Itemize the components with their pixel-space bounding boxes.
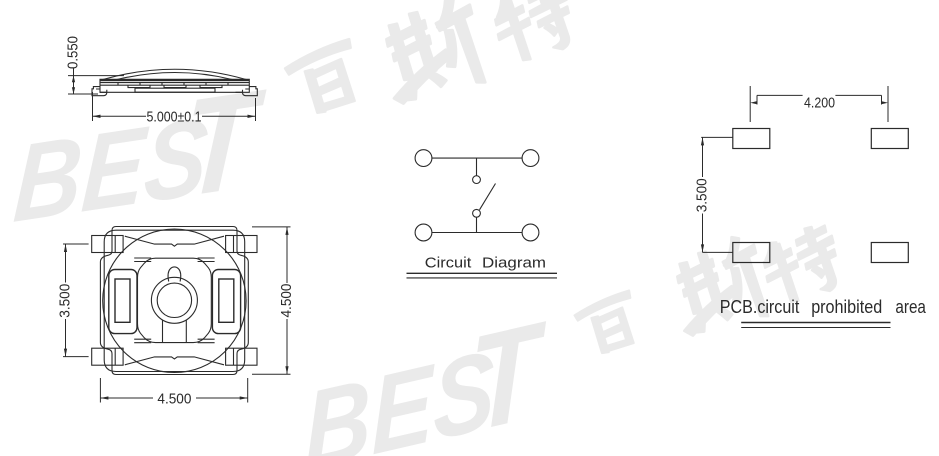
svg-text:5.000±0.1: 5.000±0.1 (147, 109, 202, 126)
svg-text:PCB.circuit: PCB.circuit (720, 296, 800, 317)
svg-text:Diagram: Diagram (482, 255, 546, 271)
svg-text:4.200: 4.200 (804, 96, 835, 112)
svg-text:4.500: 4.500 (278, 284, 295, 318)
svg-text:3.500: 3.500 (56, 284, 73, 318)
svg-text:4.500: 4.500 (157, 391, 191, 408)
svg-text:prohibited: prohibited (811, 296, 882, 317)
svg-text:area: area (895, 296, 926, 317)
svg-text:T: T (469, 292, 549, 456)
svg-text:3.500: 3.500 (693, 178, 710, 212)
svg-text:Circuit: Circuit (425, 255, 472, 271)
svg-text:0.550: 0.550 (64, 36, 81, 69)
svg-text:BES: BES (303, 326, 496, 456)
